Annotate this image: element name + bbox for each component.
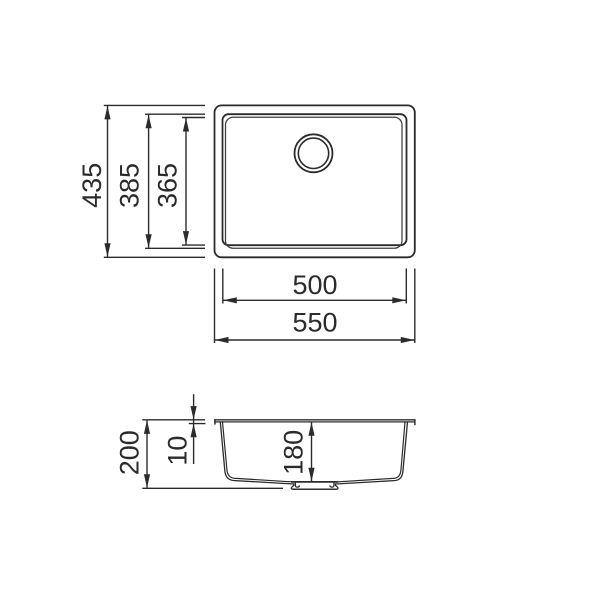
svg-text:200: 200 bbox=[114, 430, 144, 475]
svg-text:10: 10 bbox=[163, 436, 193, 466]
svg-text:435: 435 bbox=[77, 163, 107, 208]
svg-text:385: 385 bbox=[115, 163, 145, 208]
svg-text:550: 550 bbox=[292, 308, 337, 338]
svg-text:180: 180 bbox=[279, 430, 309, 475]
svg-text:500: 500 bbox=[292, 270, 337, 300]
svg-text:365: 365 bbox=[152, 163, 182, 208]
